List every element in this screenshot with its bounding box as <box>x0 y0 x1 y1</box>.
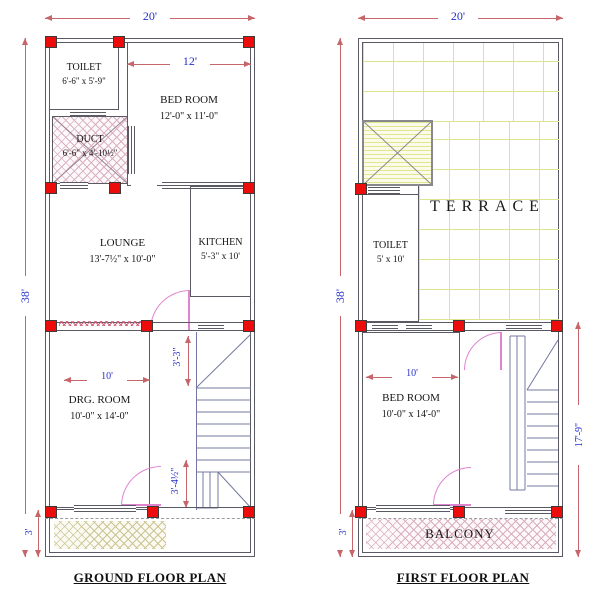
dimension-line <box>38 510 39 557</box>
dimension-width-top: 20' <box>130 10 170 22</box>
window-symbol <box>505 507 553 514</box>
window-symbol <box>372 322 398 329</box>
collapsible-shutter-symbol <box>59 321 143 326</box>
column-marker <box>113 36 125 48</box>
door-leaf <box>188 291 190 331</box>
room-size: 10'-0" x 14'-0" <box>362 407 460 422</box>
plan-title-ground: GROUND FLOOR PLAN <box>55 570 245 586</box>
column-marker <box>45 320 57 332</box>
terrace-grid <box>418 122 559 320</box>
column-marker <box>243 182 255 194</box>
column-marker <box>453 320 465 332</box>
room-name: TOILET <box>362 238 419 253</box>
floor-plan-sheet: TOILET 6'-6" x 5'-9" DUCT 6'-6" x 4'-10½… <box>0 0 600 600</box>
terrace-grid <box>363 43 559 122</box>
room-name: BED ROOM <box>127 92 251 109</box>
column-marker <box>147 506 159 518</box>
dimension-balcony-height: 3' <box>339 514 349 550</box>
window-symbol <box>198 322 224 329</box>
drg-room-label: DRG. ROOM 10'-0" x 14'-0" <box>49 392 150 424</box>
window-symbol <box>60 182 88 189</box>
window-symbol <box>368 187 400 194</box>
room-name: KITCHEN <box>190 235 251 250</box>
room-name: LOUNGE <box>55 235 190 252</box>
room-name: TOILET <box>49 60 119 75</box>
column-marker <box>109 182 121 194</box>
dimension-height-left: 38' <box>334 276 346 316</box>
door-opening <box>131 183 157 188</box>
column-marker <box>45 36 57 48</box>
room-size: 13'-7½" x 10'-0" <box>55 252 190 267</box>
dimension-height-left: 38' <box>19 276 31 316</box>
door-leaf <box>500 332 502 370</box>
window-symbol <box>406 322 432 329</box>
dimension-stair-height-right: 17'-9" <box>575 405 585 465</box>
lounge-label: LOUNGE 13'-7½" x 10'-0" <box>55 235 190 267</box>
column-marker <box>355 183 367 195</box>
duct-label: DUCT 6'-6" x 4'-10½" <box>52 132 128 161</box>
column-marker <box>243 320 255 332</box>
window-symbol <box>376 505 450 512</box>
kitchen-label: KITCHEN 5'-3" x 10' <box>190 235 251 264</box>
window-symbol <box>70 109 106 116</box>
room-size: 10'-0" x 14'-0" <box>49 409 150 424</box>
shaft-cross-icon <box>364 122 431 184</box>
column-marker <box>355 320 367 332</box>
room-size: 5' x 10' <box>362 253 419 267</box>
dimension-bedroom-width: 10' <box>392 369 432 379</box>
window-symbol <box>506 322 542 329</box>
window-symbol <box>74 505 136 512</box>
dimension-drg-width: 10' <box>87 372 127 382</box>
toilet-label: TOILET 5' x 10' <box>362 238 419 267</box>
terrace-label: TERRACE <box>420 198 555 216</box>
column-marker <box>551 320 563 332</box>
room-size: 6'-6" x 5'-9" <box>49 75 119 89</box>
room-name: BALCONY <box>380 524 540 544</box>
column-marker <box>243 506 255 518</box>
balcony-label: BALCONY <box>380 524 540 544</box>
column-marker <box>355 506 367 518</box>
plan-title-first: FIRST FLOOR PLAN <box>368 570 558 586</box>
porch-hatch <box>54 521 166 549</box>
staircase <box>196 332 252 510</box>
dimension-line <box>188 336 189 386</box>
column-marker <box>141 320 153 332</box>
porch-edge-dashed <box>45 518 255 519</box>
column-marker <box>243 36 255 48</box>
room-name: BED ROOM <box>362 390 460 407</box>
room-name: DUCT <box>52 132 128 147</box>
room-size: 12'-0" x 11'-0" <box>127 109 251 124</box>
column-marker <box>45 506 57 518</box>
dimension-line <box>352 510 353 557</box>
room-size: 6'-6" x 4'-10½" <box>52 147 128 161</box>
dimension-bedroom-width: 12' <box>170 55 210 67</box>
duct-shaft <box>362 120 433 186</box>
toilet-label: TOILET 6'-6" x 5'-9" <box>49 60 119 89</box>
dimension-line <box>186 460 187 508</box>
dimension-stair-upper: 3'-3" <box>173 335 183 379</box>
bedroom-label: BED ROOM 10'-0" x 14'-0" <box>362 390 460 422</box>
room-size: 5'-3" x 10' <box>190 250 251 264</box>
bedroom-label: BED ROOM 12'-0" x 11'-0" <box>127 92 251 124</box>
column-marker <box>45 182 57 194</box>
dimension-width-top: 20' <box>438 10 478 22</box>
dimension-porch-height: 3' <box>25 514 35 550</box>
column-marker <box>453 506 465 518</box>
column-marker <box>551 506 563 518</box>
room-name: DRG. ROOM <box>49 392 150 409</box>
staircase <box>505 332 559 508</box>
dimension-stair-lower: 3'-4½" <box>171 455 181 507</box>
